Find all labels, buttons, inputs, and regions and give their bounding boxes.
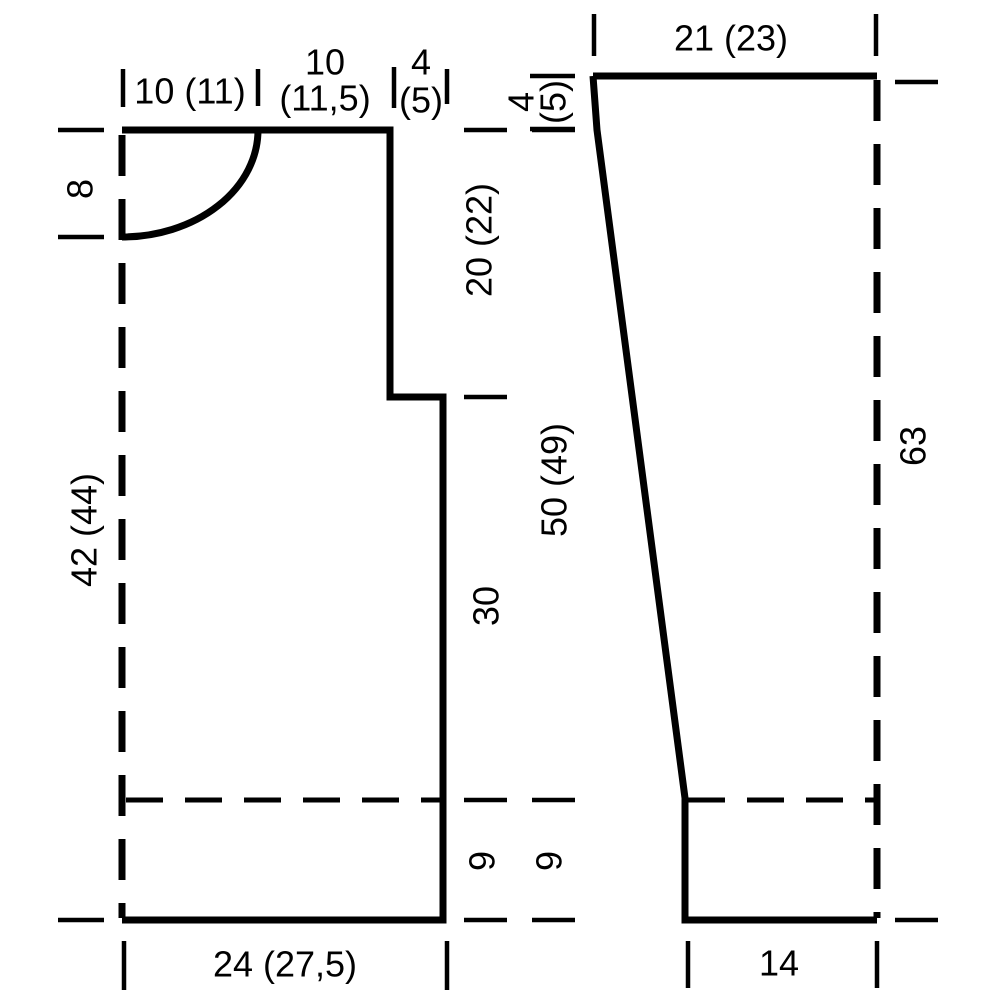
label-body-rib-height-inner: 9	[462, 851, 503, 871]
label-body-shoulder-width: 10 (11)	[134, 71, 245, 112]
sleeve-piece	[593, 76, 877, 920]
measurement-labels: 10 (11) 10 (11,5) 4 (5) 8 42 (44) 20 (22…	[60, 18, 934, 985]
label-body-upper-length: 50 (49)	[534, 423, 575, 537]
neckline-curve	[122, 130, 258, 237]
label-body-middle-section: 30	[466, 586, 507, 626]
label-sleeve-cuff-width: 14	[759, 943, 799, 984]
label-sleeve-cap-step-line2: (5)	[533, 80, 574, 124]
pattern-schematic-page: 10 (11) 10 (11,5) 4 (5) 8 42 (44) 20 (22…	[0, 0, 1000, 1000]
dimension-ticks	[58, 14, 938, 990]
label-body-neck-depth: 8	[60, 179, 101, 199]
label-body-armhole-step-line2: (5)	[399, 80, 443, 121]
pattern-schematic: 10 (11) 10 (11,5) 4 (5) 8 42 (44) 20 (22…	[0, 0, 1000, 1000]
sleeve-outline	[593, 76, 877, 920]
label-body-armhole-step-line1: 4	[411, 42, 431, 83]
label-body-neck-width-line2: (11,5)	[279, 78, 370, 119]
label-body-neck-width-line1: 10	[305, 42, 345, 83]
label-body-bottom-width: 24 (27,5)	[213, 944, 357, 985]
body-piece	[122, 130, 443, 920]
label-sleeve-length: 63	[893, 426, 934, 466]
label-sleeve-top-width: 21 (23)	[674, 18, 788, 59]
label-body-upper-section: 20 (22)	[459, 183, 500, 297]
label-body-rib-height-outer: 9	[529, 851, 570, 871]
label-body-length: 42 (44)	[64, 473, 105, 587]
